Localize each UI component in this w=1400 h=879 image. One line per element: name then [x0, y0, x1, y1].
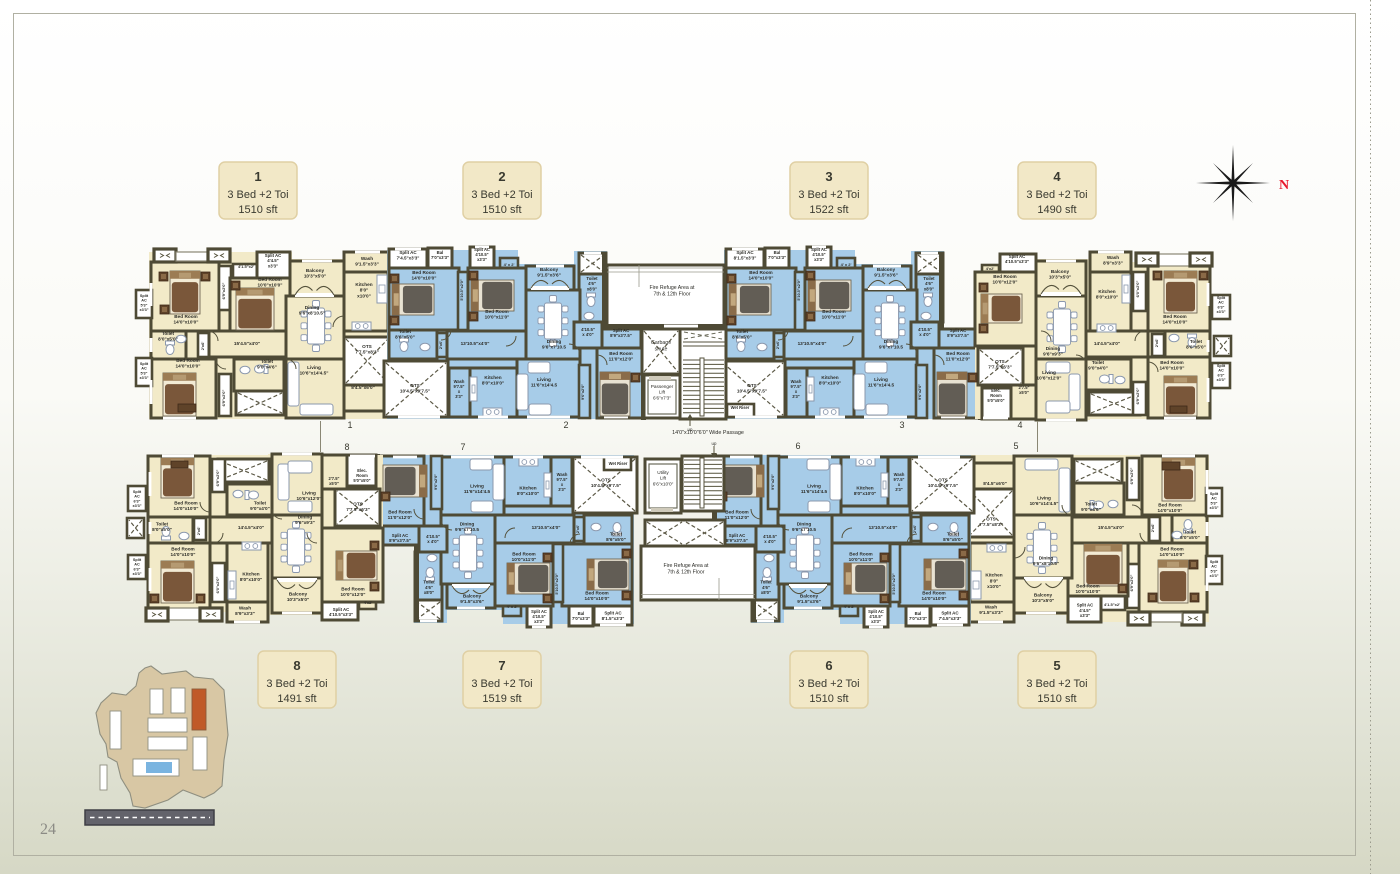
- svg-text:Toilet: Toilet: [736, 329, 749, 334]
- svg-text:x 4'0": x 4'0": [427, 539, 438, 544]
- svg-text:14'0"x10'0": 14'0"x10'0": [176, 364, 201, 369]
- svg-text:9'1.5"x3'6": 9'1.5"x3'6": [460, 599, 484, 604]
- svg-text:4'10.5"x3'3": 4'10.5"x3'3": [329, 612, 353, 617]
- svg-text:x3'3": x3'3": [534, 619, 544, 624]
- svg-text:4'10.5": 4'10.5": [426, 534, 440, 539]
- svg-text:2: 2: [563, 420, 568, 430]
- svg-text:Split AC: Split AC: [1077, 603, 1094, 608]
- svg-text:11'6"x14'4.5: 11'6"x14'4.5: [868, 383, 895, 388]
- svg-text:8'9"x3'3": 8'9"x3'3": [235, 611, 255, 616]
- svg-text:1519 sft: 1519 sft: [482, 693, 521, 705]
- svg-text:11'6"x14'4.5: 11'6"x14'4.5: [464, 489, 491, 494]
- svg-text:9'1.5"x3'3": 9'1.5"x3'3": [979, 610, 1003, 615]
- svg-text:14'0"x10'0": 14'0"x10'0": [749, 276, 774, 281]
- svg-text:7'7.5"x6'3": 7'7.5"x6'3": [346, 507, 370, 512]
- svg-text:4'x2': 4'x2': [364, 600, 373, 605]
- svg-text:x8'0": x8'0": [761, 590, 771, 595]
- svg-text:8'9"x3'7.5": 8'9"x3'7.5": [947, 333, 969, 338]
- svg-text:5'0"x5'0": 5'0"x5'0": [987, 398, 1004, 403]
- svg-text:1: 1: [347, 420, 352, 430]
- svg-text:7: 7: [498, 658, 505, 673]
- svg-text:Dining: Dining: [1046, 346, 1061, 351]
- svg-text:Wash: Wash: [1107, 255, 1119, 260]
- svg-text:OTS: OTS: [995, 359, 1005, 364]
- svg-text:Wash: Wash: [239, 605, 251, 610]
- svg-text:3 Bed +2 Toi: 3 Bed +2 Toi: [798, 678, 859, 690]
- svg-text:Toilet: Toilet: [399, 329, 412, 334]
- svg-text:9'6"x2'0": 9'6"x2'0": [771, 474, 775, 490]
- svg-text:Toilet: Toilet: [254, 500, 267, 505]
- svg-text:5'3": 5'3": [141, 371, 148, 375]
- svg-text:x5'0": x5'0": [329, 481, 339, 486]
- svg-text:x3'3": x3'3": [814, 257, 824, 262]
- svg-text:10'6"x12'0": 10'6"x12'0": [1037, 376, 1062, 381]
- svg-text:x3'3": x3'3": [1216, 378, 1225, 382]
- svg-text:Kitchen: Kitchen: [856, 485, 873, 490]
- svg-text:OTS: OTS: [362, 344, 372, 349]
- svg-text:3 Bed +2 Toi: 3 Bed +2 Toi: [471, 678, 532, 690]
- svg-text:Split: Split: [133, 558, 142, 562]
- svg-text:6'6"x10'0": 6'6"x10'0": [653, 481, 674, 486]
- svg-text:10'6"x14'4.5": 10'6"x14'4.5": [300, 371, 329, 376]
- svg-text:14'0"x10'0": 14'0"x10'0": [585, 596, 610, 601]
- svg-text:11'0"x12'0": 11'0"x12'0": [388, 515, 413, 520]
- svg-text:3'3": 3'3": [558, 487, 566, 492]
- svg-text:AC: AC: [134, 495, 140, 499]
- svg-text:Split: Split: [133, 490, 142, 494]
- svg-text:15'4.5"x4'0": 15'4.5"x4'0": [1098, 525, 1124, 530]
- svg-text:Toilet: Toilet: [760, 580, 772, 585]
- svg-text:9'0"x4'6": 9'0"x4'6": [1081, 507, 1101, 512]
- svg-text:Lift: Lift: [660, 476, 667, 481]
- svg-text:4'6": 4'6": [588, 281, 596, 286]
- svg-text:7: 7: [460, 442, 465, 452]
- svg-text:9'6"x8'10.5": 9'6"x8'10.5": [1033, 561, 1059, 566]
- svg-text:14'0"x10'0": 14'0"x10'0": [1160, 552, 1185, 557]
- svg-text:7'0"x3'3": 7'0"x3'3": [768, 255, 786, 260]
- svg-text:4' x 2': 4' x 2': [507, 604, 518, 609]
- svg-text:8'0"x5'0": 8'0"x5'0": [158, 337, 178, 342]
- svg-text:2'x6': 2'x6': [1150, 524, 1155, 533]
- svg-text:9'6"x7'10.5: 9'6"x7'10.5: [455, 527, 479, 532]
- svg-text:8'0": 8'0": [990, 578, 999, 583]
- svg-text:Toilet: Toilet: [947, 531, 960, 536]
- svg-text:Wash: Wash: [361, 256, 373, 261]
- svg-text:8'0": 8'0": [360, 288, 369, 293]
- svg-text:15'4.5"x4'0": 15'4.5"x4'0": [234, 341, 260, 346]
- svg-text:Bed Room: Bed Room: [485, 309, 508, 314]
- svg-text:6'9"x2'0": 6'9"x2'0": [1135, 387, 1140, 404]
- svg-text:Balcony: Balcony: [1034, 592, 1053, 597]
- svg-text:x3'3": x3'3": [477, 257, 487, 262]
- svg-text:6: 6: [825, 658, 832, 673]
- svg-text:x8'0": x8'0": [924, 286, 934, 291]
- svg-text:Living: Living: [537, 377, 551, 382]
- svg-text:14'0"x10'0": 14'0"x10'0": [171, 552, 196, 557]
- svg-text:7'0"x3'3": 7'0"x3'3": [572, 616, 590, 621]
- svg-text:Living: Living: [1037, 495, 1051, 500]
- svg-text:8'0"x5'0": 8'0"x5'0": [1186, 345, 1206, 350]
- svg-text:Split AC: Split AC: [941, 611, 959, 616]
- svg-text:Split: Split: [1210, 560, 1219, 564]
- svg-text:14'0"x10'0": 14'0"x10'0": [174, 320, 199, 325]
- svg-text:N: N: [1279, 178, 1289, 193]
- svg-text:Bed Room: Bed Room: [1076, 583, 1099, 588]
- svg-text:Balcony: Balcony: [540, 267, 559, 272]
- svg-text:1510 sft: 1510 sft: [238, 204, 277, 216]
- svg-text:8'0"x5'0": 8'0"x5'0": [1180, 535, 1200, 540]
- svg-text:1490 sft: 1490 sft: [1037, 204, 1076, 216]
- svg-text:3: 3: [899, 420, 904, 430]
- svg-text:Wet Riser: Wet Riser: [609, 461, 628, 466]
- svg-text:OTS: OTS: [986, 516, 996, 521]
- svg-text:13'10.5"x4'0": 13'10.5"x4'0": [869, 525, 898, 530]
- svg-text:x8'0": x8'0": [587, 286, 597, 291]
- svg-text:10'3"x5'0": 10'3"x5'0": [1032, 598, 1054, 603]
- svg-text:Bal: Bal: [578, 611, 585, 616]
- svg-text:4'6": 4'6": [762, 585, 770, 590]
- svg-text:5'3": 5'3": [141, 303, 148, 307]
- svg-text:8: 8: [344, 442, 349, 452]
- svg-text:11'6"x14'4.5: 11'6"x14'4.5: [531, 383, 558, 388]
- svg-text:2'x6': 2'x6': [196, 527, 201, 536]
- svg-text:4'x2': 4'x2': [986, 266, 995, 271]
- svg-text:8'0"x10'0": 8'0"x10'0": [240, 577, 262, 582]
- svg-text:14'0"x10'0": 14'0"x10'0": [1163, 320, 1188, 325]
- svg-text:14'0"x10'0": 14'0"x10'0": [412, 276, 437, 281]
- svg-text:9'0"x4'0": 9'0"x4'0": [1088, 366, 1108, 371]
- svg-text:Bed Room: Bed Room: [585, 590, 608, 595]
- svg-text:7th & 12th Floor: 7th & 12th Floor: [668, 569, 705, 575]
- svg-text:10'0"x11'0": 10'0"x11'0": [849, 557, 874, 562]
- svg-text:4' x 2': 4' x 2': [844, 604, 855, 609]
- svg-text:1510 sft: 1510 sft: [482, 204, 521, 216]
- svg-text:Living: Living: [470, 483, 484, 488]
- svg-text:10'4.5"x9'7.5": 10'4.5"x9'7.5": [400, 389, 430, 394]
- svg-text:3 Bed +2 Toi: 3 Bed +2 Toi: [798, 189, 859, 201]
- svg-text:Dining: Dining: [547, 339, 562, 344]
- svg-text:10'0"x11'0": 10'0"x11'0": [485, 315, 510, 320]
- svg-text:13'10.5"x4'0": 13'10.5"x4'0": [798, 341, 827, 346]
- svg-text:shute: shute: [655, 346, 668, 352]
- svg-text:9'6"x7'10.5: 9'6"x7'10.5: [879, 345, 903, 350]
- svg-text:8: 8: [293, 658, 300, 673]
- svg-text:4' x 2': 4' x 2': [841, 262, 852, 267]
- svg-text:x10'0": x10'0": [357, 293, 371, 298]
- svg-text:11'6"x14'4.5: 11'6"x14'4.5: [801, 489, 828, 494]
- svg-text:10'0"x10'0": 10'0"x10'0": [258, 283, 283, 288]
- svg-text:Dining: Dining: [884, 339, 899, 344]
- svg-text:6'3": 6'3": [1218, 373, 1225, 377]
- svg-text:Fire Refuge Area at: Fire Refuge Area at: [650, 285, 696, 291]
- svg-text:x3'3": x3'3": [1216, 310, 1225, 314]
- svg-text:8'0"x10'0": 8'0"x10'0": [482, 381, 504, 386]
- svg-text:10'0"x12'0": 10'0"x12'0": [993, 280, 1018, 285]
- svg-text:8'9"x3'3": 8'9"x3'3": [1103, 261, 1123, 266]
- svg-text:x10'0": x10'0": [987, 584, 1001, 589]
- svg-text:Split: Split: [1210, 492, 1219, 496]
- svg-text:x3'3": x3'3": [871, 619, 881, 624]
- svg-text:OTS: OTS: [601, 477, 611, 482]
- svg-text:11'0"x12'0": 11'0"x12'0": [609, 357, 634, 362]
- svg-text:Split AC: Split AC: [736, 250, 754, 255]
- svg-text:5'10.5"x2'0": 5'10.5"x2'0": [555, 573, 559, 594]
- svg-text:8'9"x3'7.5": 8'9"x3'7.5": [726, 538, 748, 543]
- svg-text:x5'0": x5'0": [1019, 390, 1029, 395]
- svg-text:Bed Room: Bed Room: [512, 551, 535, 556]
- svg-text:8'4.5"x6'0": 8'4.5"x6'0": [983, 481, 1007, 486]
- svg-text:5'10.5"x2'0": 5'10.5"x2'0": [460, 279, 464, 300]
- svg-text:4: 4: [1053, 169, 1061, 184]
- svg-text:10'0"x11'0": 10'0"x11'0": [822, 315, 847, 320]
- svg-text:x3'3": x3'3": [132, 504, 141, 508]
- svg-text:3'3": 3'3": [895, 487, 903, 492]
- svg-text:2'x6': 2'x6': [439, 341, 443, 349]
- svg-text:Living: Living: [1042, 370, 1056, 375]
- svg-text:14'0"x10'0": 14'0"x10'0": [1160, 366, 1185, 371]
- svg-text:Bed Room: Bed Room: [174, 314, 197, 319]
- svg-text:9'0"x4'0": 9'0"x4'0": [250, 506, 270, 511]
- svg-text:2'x6': 2'x6': [576, 525, 580, 533]
- svg-text:4: 4: [1017, 420, 1022, 430]
- svg-text:10'0"x10'0": 10'0"x10'0": [1076, 589, 1101, 594]
- svg-text:4'4.5": 4'4.5": [1079, 608, 1090, 613]
- svg-text:9'6"x9'3": 9'6"x9'3": [1043, 352, 1063, 357]
- svg-text:Balcony: Balcony: [1051, 269, 1070, 274]
- svg-text:11'0"x12'0": 11'0"x12'0": [946, 357, 971, 362]
- svg-text:10'3"x5'0": 10'3"x5'0": [287, 597, 309, 602]
- svg-text:9'1.5"x3'6": 9'1.5"x3'6": [537, 273, 561, 278]
- svg-text:Living: Living: [807, 483, 821, 488]
- svg-text:Toilet: Toilet: [156, 521, 169, 526]
- svg-text:5'10.5"x2'0": 5'10.5"x2'0": [797, 279, 801, 300]
- svg-text:Bed Room: Bed Room: [946, 351, 969, 356]
- svg-text:4'1.5"x2': 4'1.5"x2': [1104, 602, 1120, 607]
- svg-text:Balcony: Balcony: [800, 593, 819, 598]
- svg-text:AC: AC: [1218, 301, 1224, 305]
- svg-text:x 4'0": x 4'0": [919, 332, 930, 337]
- svg-text:4' x 2': 4' x 2': [504, 262, 515, 267]
- svg-text:8'1.5"x3'3": 8'1.5"x3'3": [734, 255, 757, 260]
- svg-text:Toilet: Toilet: [261, 359, 274, 364]
- svg-text:Toilet: Toilet: [610, 531, 623, 536]
- svg-text:AC: AC: [134, 563, 140, 567]
- svg-text:2'x6': 2'x6': [1154, 339, 1159, 348]
- svg-text:8'4.5"x6'0": 8'4.5"x6'0": [351, 385, 375, 390]
- svg-text:8'0"x5'0": 8'0"x5'0": [152, 527, 172, 532]
- svg-text:3'3": 3'3": [455, 394, 463, 399]
- svg-text:OTS: OTS: [410, 383, 420, 388]
- svg-text:14'0"x10'0": 14'0"x10'0": [1158, 508, 1183, 513]
- svg-text:5'3": 5'3": [1211, 501, 1218, 505]
- svg-text:9'6"x7'10.5: 9'6"x7'10.5: [792, 527, 816, 532]
- svg-text:Balcony: Balcony: [877, 267, 896, 272]
- svg-text:Toilet: Toilet: [1190, 339, 1203, 344]
- svg-text:8'0"x10'0": 8'0"x10'0": [517, 491, 539, 496]
- svg-text:Bed Room: Bed Room: [1163, 314, 1186, 319]
- svg-text:10'3"x5'0": 10'3"x5'0": [304, 274, 326, 279]
- svg-text:Kitchen: Kitchen: [519, 485, 536, 490]
- svg-text:x3'3": x3'3": [1080, 613, 1090, 618]
- svg-text:Split AC: Split AC: [604, 611, 622, 616]
- svg-text:10'0"x12'0": 10'0"x12'0": [341, 592, 366, 597]
- svg-text:14'4.5"x4'0": 14'4.5"x4'0": [238, 525, 264, 530]
- svg-text:11'0"x12'0": 11'0"x12'0": [725, 515, 750, 520]
- svg-text:10'6"x14'4.5": 10'6"x14'4.5": [1030, 501, 1059, 506]
- svg-text:Bed Room: Bed Room: [922, 590, 945, 595]
- svg-text:Dining: Dining: [797, 521, 812, 526]
- svg-text:Toilet: Toilet: [1184, 529, 1197, 534]
- svg-text:Bed Room: Bed Room: [822, 309, 845, 314]
- svg-text:9'6"x7'10.5: 9'6"x7'10.5: [542, 345, 566, 350]
- svg-text:6'6"x7'3": 6'6"x7'3": [653, 395, 671, 400]
- svg-text:8'0"x10'0": 8'0"x10'0": [1096, 295, 1118, 300]
- svg-text:Bed Room: Bed Room: [609, 351, 632, 356]
- svg-text:Bal: Bal: [915, 611, 922, 616]
- svg-text:5'0"x5'0": 5'0"x5'0": [353, 478, 370, 483]
- svg-text:6'9"x2'0": 6'9"x2'0": [1129, 574, 1134, 591]
- svg-text:Toilet: Toilet: [1092, 360, 1105, 365]
- svg-text:9'6"x2'0": 9'6"x2'0": [434, 474, 438, 490]
- svg-text:x3'3": x3'3": [1209, 574, 1218, 578]
- svg-text:10'3"x5'0": 10'3"x5'0": [1049, 275, 1071, 280]
- svg-text:Dining: Dining: [1039, 555, 1054, 560]
- svg-text:Bed Room: Bed Room: [749, 270, 772, 275]
- svg-text:6'9"x2'0": 6'9"x2'0": [221, 389, 226, 406]
- svg-text:6'0"x2'0": 6'0"x2'0": [1135, 280, 1140, 297]
- svg-text:Bed Room: Bed Room: [725, 509, 748, 514]
- svg-text:Toilet: Toilet: [423, 580, 435, 585]
- svg-text:Wash: Wash: [985, 604, 997, 609]
- svg-text:6'3": 6'3": [134, 567, 141, 571]
- svg-text:3'3": 3'3": [792, 394, 800, 399]
- svg-text:x 4'0": x 4'0": [764, 539, 775, 544]
- svg-text:9'6"x2'0": 9'6"x2'0": [918, 384, 922, 400]
- svg-text:OTS: OTS: [938, 477, 948, 482]
- svg-text:up: up: [712, 441, 717, 446]
- svg-text:3 Bed +2 Toi: 3 Bed +2 Toi: [266, 678, 327, 690]
- svg-text:x3'3": x3'3": [139, 376, 148, 380]
- svg-text:Dining: Dining: [305, 305, 320, 310]
- svg-text:9'6"x9'3": 9'6"x9'3": [295, 520, 315, 525]
- svg-text:8'1.5"x3'3": 8'1.5"x3'3": [602, 616, 625, 621]
- svg-text:4'6": 4'6": [425, 585, 433, 590]
- svg-text:Utility: Utility: [657, 470, 669, 475]
- svg-text:3 Bed +2 Toi: 3 Bed +2 Toi: [1026, 678, 1087, 690]
- svg-text:1: 1: [254, 169, 261, 184]
- svg-text:14'0"x10'0": 14'0"x10'0": [922, 596, 947, 601]
- svg-text:4'10.5": 4'10.5": [763, 534, 777, 539]
- svg-text:Bed Room: Bed Room: [174, 500, 197, 505]
- svg-text:10'4.5"x9'7.5": 10'4.5"x9'7.5": [928, 483, 958, 488]
- svg-text:1510 sft: 1510 sft: [809, 693, 848, 705]
- svg-text:13'10.5"x4'0": 13'10.5"x4'0": [532, 525, 561, 530]
- svg-text:6'3": 6'3": [134, 499, 141, 503]
- svg-text:9'1.5"x3'6": 9'1.5"x3'6": [874, 273, 898, 278]
- svg-text:14'0"x10'0": 14'0"x10'0": [174, 506, 199, 511]
- svg-text:Garbage: Garbage: [651, 340, 671, 346]
- svg-text:Bed Room: Bed Room: [171, 546, 194, 551]
- svg-text:Fire Refuge Area at: Fire Refuge Area at: [664, 563, 710, 569]
- svg-text:Lift: Lift: [659, 390, 666, 395]
- svg-text:Kitchen: Kitchen: [484, 375, 501, 380]
- svg-text:x 4'0": x 4'0": [582, 332, 593, 337]
- svg-text:8'6"x5'0": 8'6"x5'0": [395, 335, 415, 340]
- svg-text:8'9"x3'7.5": 8'9"x3'7.5": [389, 538, 411, 543]
- svg-text:AC: AC: [1211, 497, 1217, 501]
- svg-text:Bed Room: Bed Room: [176, 358, 199, 363]
- svg-text:Bed Room: Bed Room: [993, 274, 1016, 279]
- svg-text:9'6"x8'10.5": 9'6"x8'10.5": [299, 311, 325, 316]
- svg-text:AC: AC: [1211, 565, 1217, 569]
- svg-text:2: 2: [498, 169, 505, 184]
- svg-text:Split: Split: [140, 362, 149, 366]
- svg-text:Split AC: Split AC: [729, 533, 746, 538]
- svg-text:1491 sft: 1491 sft: [277, 693, 316, 705]
- svg-text:7'7.5"x8'3": 7'7.5"x8'3": [979, 522, 1003, 527]
- svg-text:Living: Living: [874, 377, 888, 382]
- svg-text:Bed Room: Bed Room: [388, 509, 411, 514]
- svg-text:10'4.5"x9'7.5": 10'4.5"x9'7.5": [591, 483, 621, 488]
- svg-text:AC: AC: [141, 299, 147, 303]
- svg-text:6'0"x2'0": 6'0"x2'0": [215, 576, 220, 593]
- svg-text:8'0"x10'0": 8'0"x10'0": [819, 381, 841, 386]
- svg-text:7'0"x3'3": 7'0"x3'3": [431, 255, 449, 260]
- svg-text:Split: Split: [140, 294, 149, 298]
- svg-text:OTS: OTS: [353, 501, 363, 506]
- svg-text:5: 5: [1053, 658, 1060, 673]
- svg-text:AC: AC: [1218, 369, 1224, 373]
- svg-text:4'6": 4'6": [925, 281, 933, 286]
- svg-text:10'4.5"x9'7.5": 10'4.5"x9'7.5": [737, 389, 767, 394]
- svg-text:7'4.5"x3'3": 7'4.5"x3'3": [397, 255, 420, 260]
- svg-text:Kitchen: Kitchen: [355, 282, 372, 287]
- svg-text:Toilet: Toilet: [162, 331, 175, 336]
- svg-text:10'0"x11'0": 10'0"x11'0": [512, 557, 537, 562]
- svg-text:Toilet: Toilet: [1085, 501, 1098, 506]
- svg-text:OTS: OTS: [747, 383, 757, 388]
- svg-text:Split: Split: [1217, 364, 1226, 368]
- svg-text:14'0"x10'0"6'0" Wide Passage: 14'0"x10'0"6'0" Wide Passage: [672, 430, 744, 436]
- svg-text:2'x6': 2'x6': [776, 341, 780, 349]
- svg-text:6'9"x2'0": 6'9"x2'0": [215, 469, 220, 486]
- svg-text:7'7.5"x8'3": 7'7.5"x8'3": [355, 350, 379, 355]
- svg-text:Wet Riser: Wet Riser: [731, 405, 750, 410]
- svg-text:6'9"x2'0": 6'9"x2'0": [221, 282, 226, 299]
- svg-text:Kitchen: Kitchen: [242, 571, 259, 576]
- svg-text:13'10.5"x4'0": 13'10.5"x4'0": [461, 341, 490, 346]
- svg-text:9'0"x4'6": 9'0"x4'6": [257, 365, 277, 370]
- svg-text:5'3": 5'3": [1211, 569, 1218, 573]
- svg-text:8'9"x3'7.5": 8'9"x3'7.5": [610, 333, 632, 338]
- svg-text:9'6"x2'0": 9'6"x2'0": [581, 384, 585, 400]
- svg-text:10'6"x12'0": 10'6"x12'0": [297, 496, 322, 501]
- svg-text:9'1.5"x3'6": 9'1.5"x3'6": [797, 599, 821, 604]
- svg-text:7th & 12th Floor: 7th & 12th Floor: [654, 291, 691, 297]
- svg-text:7'0"x3'3": 7'0"x3'3": [909, 616, 927, 621]
- svg-text:5: 5: [1013, 441, 1018, 451]
- svg-text:8'6"x5'0": 8'6"x5'0": [606, 537, 626, 542]
- svg-text:Split AC: Split AC: [399, 250, 417, 255]
- svg-text:Bed Room: Bed Room: [341, 586, 364, 591]
- svg-text:Bed Room: Bed Room: [849, 551, 872, 556]
- svg-text:3 Bed +2 Toi: 3 Bed +2 Toi: [1026, 189, 1087, 201]
- svg-text:x3'3": x3'3": [132, 572, 141, 576]
- svg-text:7'4.5"x3'3": 7'4.5"x3'3": [939, 616, 962, 621]
- svg-text:6'3": 6'3": [1218, 305, 1225, 309]
- svg-text:6'9"x2'0": 6'9"x2'0": [1129, 467, 1134, 484]
- svg-text:3 Bed +2 Toi: 3 Bed +2 Toi: [471, 189, 532, 201]
